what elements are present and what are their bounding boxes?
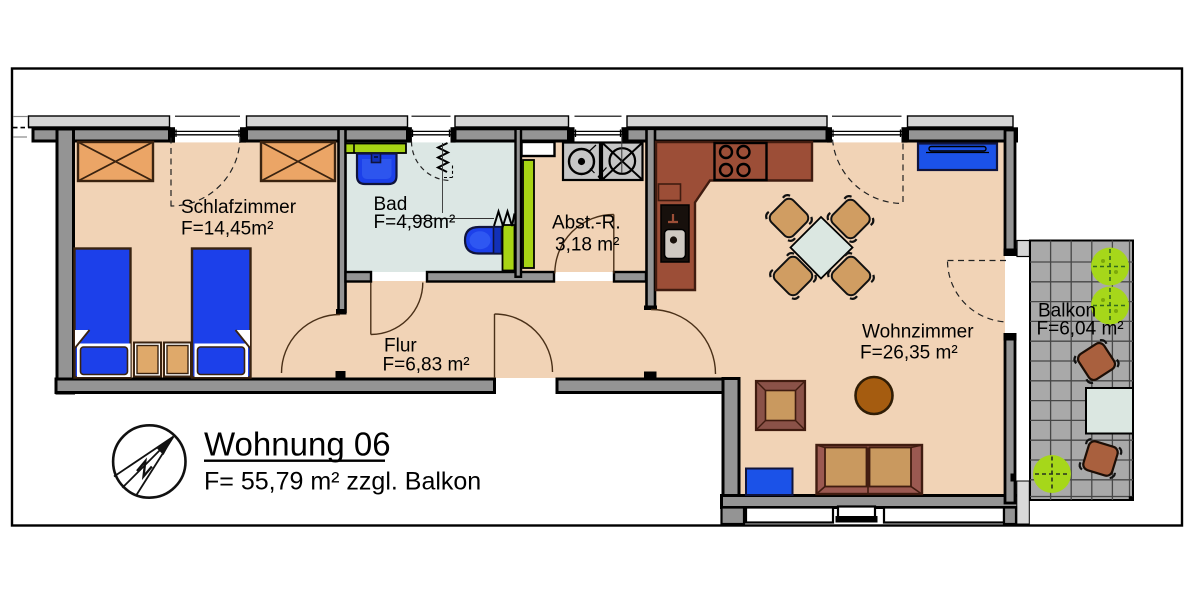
svg-text:F=6,83 m²: F=6,83 m² (383, 355, 470, 376)
svg-text:Wohnzimmer: Wohnzimmer (862, 322, 974, 343)
svg-text:Abst.-R.: Abst.-R. (552, 213, 621, 234)
svg-text:F= 55,79 m² zzgl. Balkon: F= 55,79 m² zzgl. Balkon (204, 468, 481, 496)
svg-text:F=14,45m²: F=14,45m² (181, 219, 273, 240)
svg-text:F=6,04 m²: F=6,04 m² (1037, 319, 1124, 340)
svg-text:Wohnung 06: Wohnung 06 (204, 426, 391, 463)
svg-text:Flur: Flur (384, 336, 417, 357)
svg-text:Schlafzimmer: Schlafzimmer (181, 197, 297, 218)
svg-text:3,18 m²: 3,18 m² (555, 235, 619, 256)
svg-text:F=4,98m²: F=4,98m² (374, 212, 456, 233)
svg-text:F=26,35 m²: F=26,35 m² (860, 343, 958, 364)
